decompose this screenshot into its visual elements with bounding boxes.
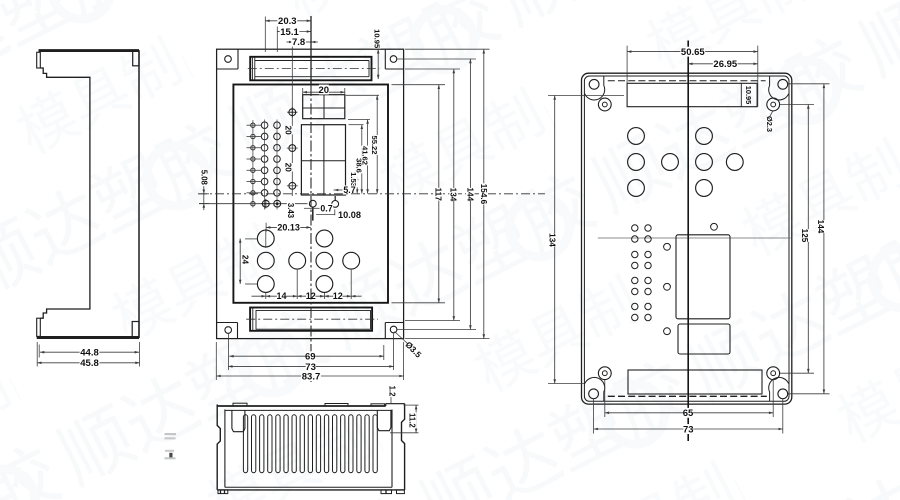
svg-text:144: 144 — [816, 220, 825, 234]
svg-text:154.6: 154.6 — [479, 184, 488, 205]
svg-text:20.3: 20.3 — [278, 16, 297, 27]
svg-text:1.2: 1.2 — [387, 386, 396, 398]
svg-text:26.95: 26.95 — [713, 59, 737, 70]
svg-text:5.08: 5.08 — [199, 170, 208, 186]
svg-text:117: 117 — [434, 188, 443, 202]
svg-text:50.65: 50.65 — [681, 47, 705, 58]
svg-text:20: 20 — [284, 163, 293, 173]
svg-text:10.95: 10.95 — [372, 29, 381, 49]
svg-text:12: 12 — [333, 291, 343, 301]
svg-text:65: 65 — [683, 408, 694, 419]
svg-text:11.2: 11.2 — [407, 413, 416, 428]
svg-text:14: 14 — [276, 291, 286, 301]
svg-text:73: 73 — [683, 424, 694, 435]
svg-text:7.8: 7.8 — [292, 37, 305, 48]
svg-text:20: 20 — [284, 126, 293, 136]
svg-text:20: 20 — [319, 85, 330, 96]
svg-text:44.8: 44.8 — [80, 348, 99, 359]
svg-text:20.13: 20.13 — [277, 222, 300, 232]
svg-text:125: 125 — [800, 229, 809, 243]
svg-text:Ø2.3: Ø2.3 — [765, 116, 774, 132]
svg-text:24: 24 — [241, 255, 250, 265]
svg-text:83.7: 83.7 — [302, 371, 321, 382]
svg-text:144: 144 — [465, 187, 474, 201]
svg-text:45.8: 45.8 — [80, 358, 99, 369]
svg-text:0.7: 0.7 — [320, 203, 332, 213]
svg-text:10.95: 10.95 — [744, 86, 753, 105]
svg-text:134: 134 — [449, 188, 458, 202]
svg-text:41.62: 41.62 — [361, 146, 370, 165]
svg-text:3.43: 3.43 — [286, 203, 295, 219]
svg-text:55.22: 55.22 — [370, 135, 379, 154]
svg-text:134: 134 — [547, 233, 556, 247]
svg-text:10.08: 10.08 — [338, 210, 361, 220]
